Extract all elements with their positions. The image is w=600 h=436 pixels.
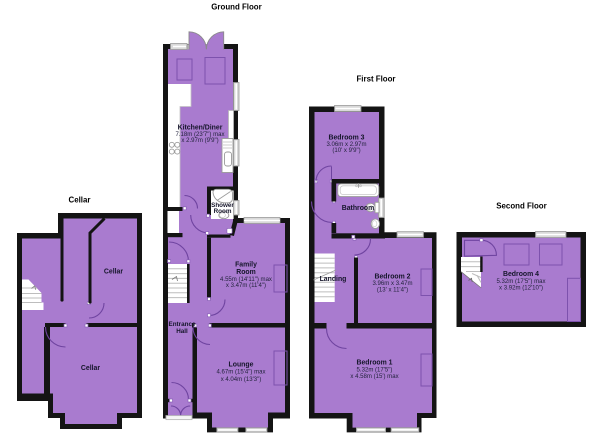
svg-text:x 4.58m (15') max: x 4.58m (15') max	[350, 374, 398, 380]
svg-text:Cellar: Cellar	[81, 365, 100, 372]
svg-text:5.32m (17'5") max: 5.32m (17'5") max	[496, 279, 545, 285]
svg-text:Lounge: Lounge	[229, 361, 254, 368]
svg-text:Bedroom 2: Bedroom 2	[375, 273, 411, 280]
svg-text:Family: Family	[235, 261, 257, 268]
svg-text:(13' x 11'4"): (13' x 11'4")	[377, 287, 408, 293]
svg-text:3.96m x 3.47m: 3.96m x 3.47m	[373, 281, 413, 287]
svg-text:First Floor: First Floor	[356, 75, 395, 84]
svg-text:x 3.47m (11'4"): x 3.47m (11'4")	[226, 283, 266, 289]
svg-text:Second Floor: Second Floor	[496, 201, 546, 210]
svg-text:Bedroom 1: Bedroom 1	[357, 360, 393, 367]
svg-text:Cellar: Cellar	[69, 195, 91, 204]
svg-text:4.67m (15'4") max: 4.67m (15'4") max	[216, 370, 265, 376]
svg-text:Landing: Landing	[320, 276, 347, 283]
svg-text:Room: Room	[214, 208, 232, 215]
svg-text:Hall: Hall	[176, 328, 188, 335]
svg-text:Bathroom: Bathroom	[342, 205, 375, 212]
svg-text:4.55m (14'11") max: 4.55m (14'11") max	[220, 277, 272, 283]
svg-text:Cellar: Cellar	[104, 269, 123, 276]
svg-text:(10' x 9'9"): (10' x 9'9")	[332, 148, 360, 154]
svg-text:Ground Floor: Ground Floor	[211, 2, 261, 11]
svg-text:Bedroom 4: Bedroom 4	[503, 271, 539, 278]
svg-text:x 3.92m (12'10"): x 3.92m (12'10")	[499, 285, 543, 291]
svg-text:Room: Room	[236, 269, 256, 276]
svg-text:Kitchen/Diner: Kitchen/Diner	[178, 125, 223, 132]
svg-text:x 4.04m (13'3"): x 4.04m (13'3")	[221, 377, 262, 383]
svg-text:7.18m (23'7") max: 7.18m (23'7") max	[175, 132, 224, 138]
svg-text:Entrance: Entrance	[169, 321, 196, 328]
svg-text:x 2.97m (9'9"): x 2.97m (9'9")	[181, 138, 218, 144]
svg-text:5.32m (17'5"): 5.32m (17'5")	[357, 367, 393, 373]
svg-text:Bedroom 3: Bedroom 3	[329, 135, 365, 142]
